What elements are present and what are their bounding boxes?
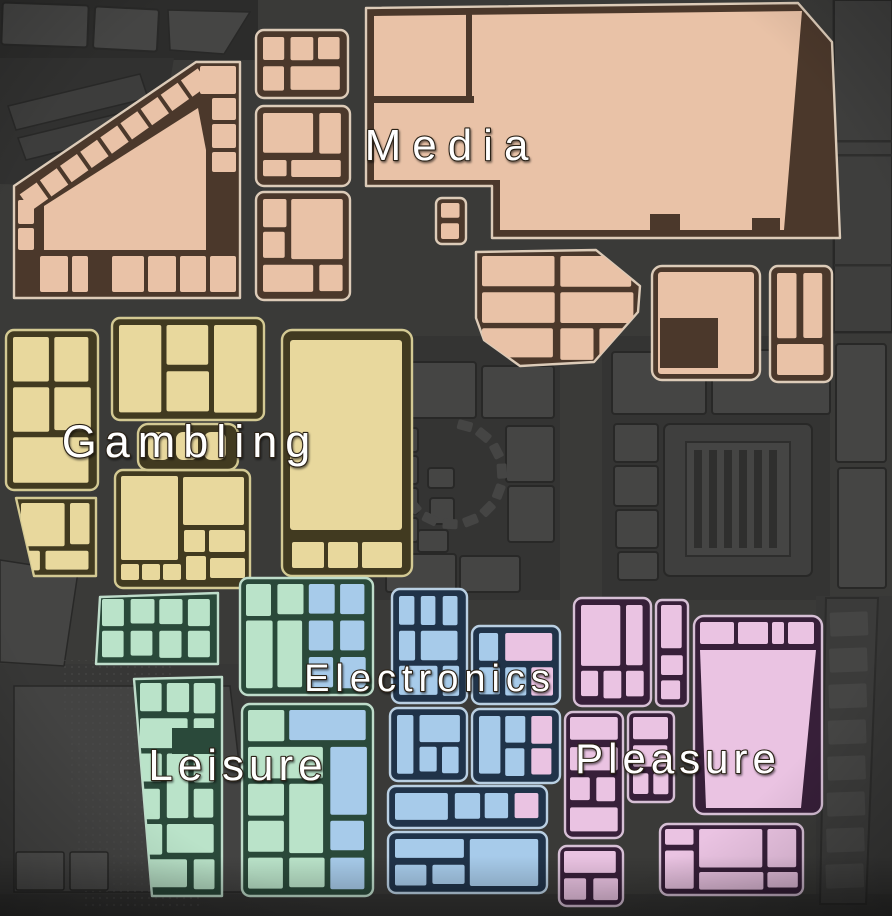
city-district-map: MediaGamblingLeisureElectronicsPleasure <box>0 0 892 916</box>
vignette <box>0 0 892 916</box>
map-canvas: MediaGamblingLeisureElectronicsPleasure <box>0 0 892 916</box>
